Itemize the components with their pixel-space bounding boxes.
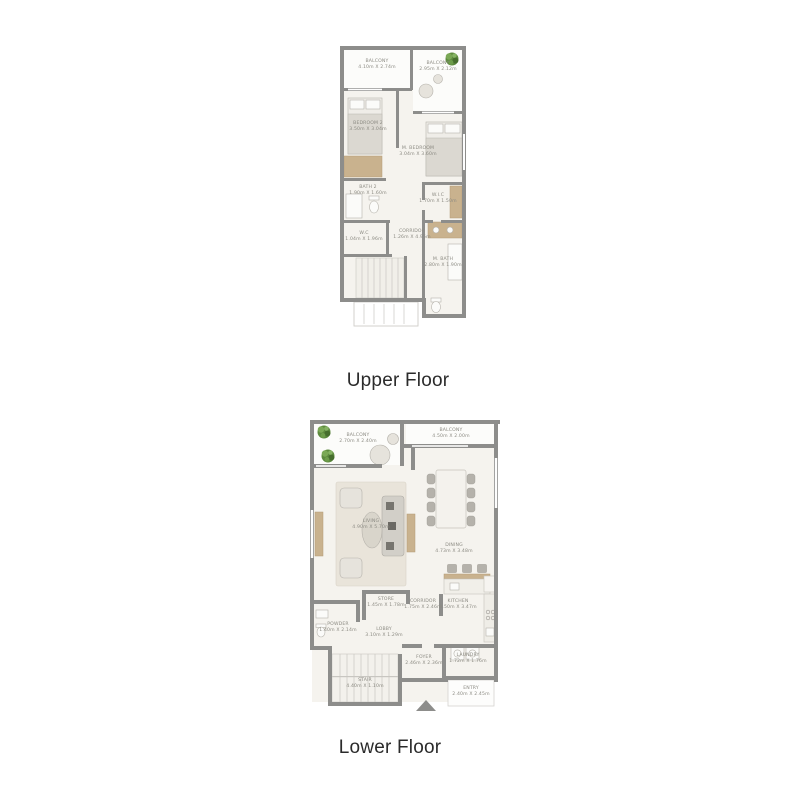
armchair (340, 558, 362, 578)
dining-table (436, 470, 466, 528)
room-label: M. BEDROOM (402, 145, 434, 151)
room-label: BALCONY (347, 432, 370, 438)
kitchen-sink (486, 628, 494, 636)
bar-stool (477, 564, 487, 573)
room-dims: 3.50m X 3.47m (439, 604, 477, 610)
sofa-pillow (386, 542, 394, 550)
room-label: M. BATH (433, 256, 453, 262)
island-sink (450, 583, 459, 590)
upper-stair-tail (354, 302, 418, 326)
room-dims: 2.70m X 2.40m (339, 438, 377, 444)
room-label: BALCONY (366, 58, 389, 64)
room-dims: 1.40m X 2.14m (319, 627, 357, 633)
room-label: CORRIDOR (410, 598, 437, 604)
room-dims: 2.80m X 1.90m (424, 262, 462, 268)
room-dims: 3.50m X 3.04m (349, 126, 387, 132)
room-label: BATH 2 (359, 184, 376, 190)
coffee-table (362, 512, 382, 548)
plant-icon (318, 426, 331, 439)
room-label: DINING (445, 542, 463, 548)
room-dims: 1.75m X 2.46m (404, 604, 442, 610)
page-background: BALCONY 4.10m X 2.74m BALCONY 2.95m X 2.… (0, 0, 800, 800)
upper-floor-plan: BALCONY 4.10m X 2.74m BALCONY 2.95m X 2.… (338, 44, 468, 332)
sofa-pillow (386, 502, 394, 510)
room-dims: 1.45m X 1.78m (367, 602, 405, 608)
bedroom2-bed (348, 98, 382, 154)
balcony-chair (419, 84, 433, 98)
room-dims: 3.10m X 1.29m (365, 632, 403, 638)
room-dims: 4.10m X 2.74m (358, 64, 396, 70)
room-dims: 1.70m X 1.50m (419, 198, 457, 204)
sink (316, 610, 328, 618)
plant-icon (322, 450, 335, 463)
armchair (340, 488, 362, 508)
room-label: POWDER (327, 621, 349, 627)
room-label: W.I.C (432, 192, 444, 198)
room-label: BALCONY (440, 427, 463, 433)
balcony-table (434, 75, 443, 84)
room-dims: 1.04m X 1.96m (345, 236, 383, 242)
room-dims: 2.40m X 2.45m (452, 691, 490, 697)
room-dims: 3.04m X 3.60m (399, 151, 437, 157)
living-room-furniture (336, 482, 406, 586)
room-dims: 4.73m X 3.48m (435, 548, 473, 554)
lower-floor-plan: BALCONY 2.70m X 2.40m BALCONY 4.50m X 2.… (308, 418, 503, 712)
bar-stool (462, 564, 472, 573)
room-label: LAUNDRY (457, 652, 480, 658)
room-label: STAIR (358, 677, 372, 683)
room-label: KITCHEN (448, 598, 469, 604)
upper-floor-title: Upper Floor (298, 369, 498, 392)
room-dims: 4.90m X 5.70m (352, 524, 390, 530)
room-dims: 1.26m X 4.95m (393, 234, 431, 240)
room-dims: 4.50m X 2.00m (432, 433, 470, 439)
lower-floor-title: Lower Floor (290, 736, 490, 759)
room-label: FOYER (416, 654, 432, 660)
room-label: LIVING (363, 518, 380, 524)
room-dims: 4.40m X 1.10m (346, 683, 384, 689)
room-label: CORRIDOR (399, 228, 426, 234)
balcony-table (388, 434, 399, 445)
balcony-chair (370, 445, 390, 465)
room-label: W.C (359, 230, 368, 236)
room-dims: 2.46m X 2.36m (405, 660, 443, 666)
room-dims: 2.95m X 2.12m (419, 66, 457, 72)
room-label: LOBBY (376, 626, 392, 632)
room-dims: 1.90m X 1.60m (349, 190, 387, 196)
upper-stairs (356, 258, 404, 298)
room-label: BEDROOM 2 (353, 120, 383, 126)
room-label: BALCONY (427, 60, 450, 66)
bar-stool (447, 564, 457, 573)
room-label: STORE (378, 596, 394, 602)
room-dims: 1.72m X 1.76m (449, 658, 487, 664)
room-label: ENTRY (463, 685, 479, 691)
